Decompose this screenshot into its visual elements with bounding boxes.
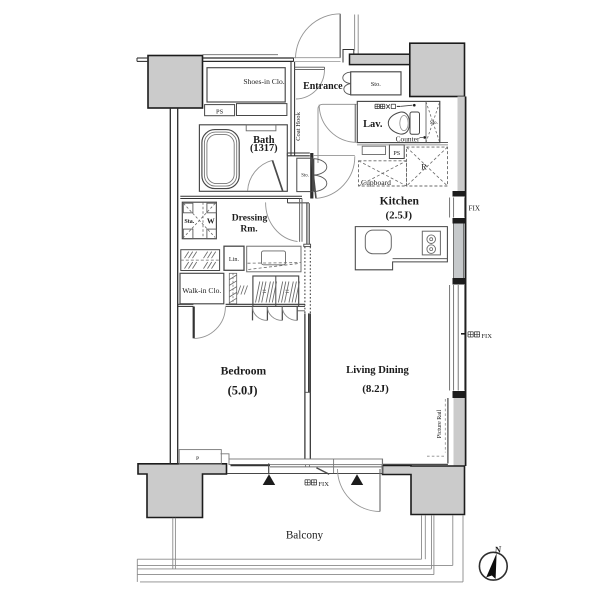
svg-text:Walk-in Clo.: Walk-in Clo. <box>182 286 221 295</box>
svg-text:Balcony: Balcony <box>286 530 324 542</box>
svg-text:P: P <box>196 456 199 462</box>
svg-text:Sta.: Sta. <box>184 219 194 225</box>
svg-text:W: W <box>207 217 215 226</box>
svg-text:Bedroom: Bedroom <box>221 364 267 377</box>
svg-text:Dressing: Dressing <box>232 213 268 224</box>
svg-text:FIX: FIX <box>469 204 481 212</box>
svg-text:Picture Rail: Picture Rail <box>437 409 443 438</box>
svg-text:Lav.: Lav. <box>363 119 383 130</box>
svg-text:Cupboard: Cupboard <box>361 178 391 187</box>
svg-text:Living Dining: Living Dining <box>346 365 409 376</box>
svg-text:(1317): (1317) <box>250 143 278 154</box>
svg-text:Lin.: Lin. <box>229 256 240 263</box>
svg-text:Coat Hook: Coat Hook <box>295 111 302 140</box>
svg-text:Kitchen: Kitchen <box>380 195 420 208</box>
svg-text:FIX: FIX <box>481 333 492 340</box>
svg-text:(2.5J): (2.5J) <box>386 209 413 221</box>
svg-text:PS: PS <box>393 150 400 157</box>
svg-text:PS: PS <box>216 108 224 115</box>
svg-text:(5.0J): (5.0J) <box>228 383 258 397</box>
svg-text:Counter: Counter <box>396 134 420 143</box>
svg-text:Rm.: Rm. <box>240 223 257 234</box>
svg-text:Sto.: Sto. <box>371 81 382 88</box>
svg-text:FIX: FIX <box>318 481 329 488</box>
svg-text:Entrance: Entrance <box>303 81 343 92</box>
svg-text:Shoes-in Clo.: Shoes-in Clo. <box>243 77 284 86</box>
svg-text:R: R <box>421 163 427 172</box>
svg-text:Sto.: Sto. <box>430 120 438 126</box>
svg-text:Sto.: Sto. <box>301 174 309 179</box>
svg-text:(8.2J): (8.2J) <box>362 383 389 395</box>
